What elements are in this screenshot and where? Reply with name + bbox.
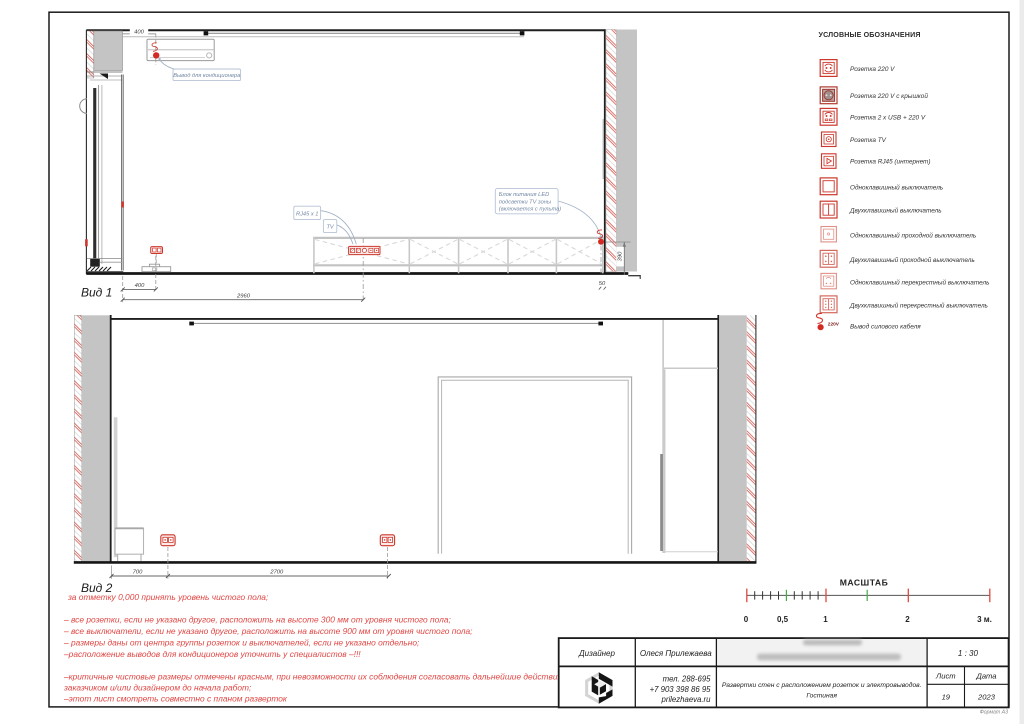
svg-text:Развертки стен с расположением: Развертки стен с расположением розеток и…: [722, 681, 922, 689]
svg-text:Одноклавишный проходной выключ: Одноклавишный проходной выключатель: [850, 231, 976, 239]
svg-text:1 : 30: 1 : 30: [958, 649, 979, 658]
svg-text:2960: 2960: [236, 294, 251, 300]
svg-text:тел. 288-695: тел. 288-695: [663, 674, 712, 683]
svg-text:Блок питания LED: Блок питания LED: [499, 192, 549, 198]
svg-text:TV: TV: [326, 225, 334, 231]
svg-text:Одноклавишный перекрестный вык: Одноклавишный перекрестный выключатель: [850, 278, 989, 286]
svg-text:– размеры даны от центра групп: – размеры даны от центра группы розеток …: [63, 638, 420, 648]
svg-text:Двухклавишный перекрестный вык: Двухклавишный перекрестный выключатель: [849, 301, 988, 309]
svg-text:(включается с пульта): (включается с пульта): [499, 206, 561, 212]
svg-text:0: 0: [744, 615, 749, 624]
svg-text:220V: 220V: [828, 322, 840, 328]
svg-text:УСЛОВНЫЕ ОБОЗНАЧЕНИЯ: УСЛОВНЫЕ ОБОЗНАЧЕНИЯ: [819, 31, 921, 39]
svg-text:Олеся Прилежаева: Олеся Прилежаева: [640, 649, 712, 658]
svg-text:Двухклавишный выключатель: Двухклавишный выключатель: [849, 207, 942, 215]
svg-text:prilezhaeva.ru: prilezhaeva.ru: [661, 695, 712, 704]
svg-text:Дата: Дата: [975, 672, 996, 681]
svg-text:50: 50: [599, 281, 606, 287]
svg-text:1: 1: [823, 615, 828, 624]
svg-text:Дизайнер: Дизайнер: [578, 649, 615, 658]
svg-text:МАСШТАБ: МАСШТАБ: [840, 578, 889, 588]
svg-text:–критичные чистовые размеры от: –критичные чистовые размеры отмечены кра…: [63, 672, 569, 682]
svg-text:390: 390: [618, 251, 624, 261]
svg-text:– все розетки, если не указано: – все розетки, если не указано другое, р…: [63, 615, 451, 625]
svg-text:0,5: 0,5: [777, 615, 789, 624]
svg-text:Розетка 220 V с крышкой: Розетка 220 V с крышкой: [850, 92, 928, 100]
svg-text:Вывод для кондиционера: Вывод для кондиционера: [173, 73, 240, 79]
svg-text:2: 2: [905, 615, 910, 624]
svg-text:Лист: Лист: [935, 672, 956, 681]
svg-text:400: 400: [134, 30, 144, 36]
svg-text:700: 700: [133, 570, 143, 576]
svg-text:заказчиком и/или дизайнером до: заказчиком и/или дизайнером до начала ра…: [63, 682, 252, 692]
svg-text:Вывод силового кабеля: Вывод силового кабеля: [850, 323, 921, 331]
svg-text:–расположение выводов для конд: –расположение выводов для кондиционеров …: [63, 649, 361, 659]
svg-text:– все выключатели, если не ука: – все выключатели, если не указано друго…: [63, 626, 473, 636]
svg-text:3 м.: 3 м.: [977, 615, 992, 624]
svg-text:Двухклавишный проходной выключ: Двухклавишный проходной выключатель: [849, 256, 975, 264]
svg-text:400: 400: [135, 283, 145, 289]
svg-text:Вид 1: Вид 1: [81, 286, 112, 300]
svg-text:Розетка 220 V: Розетка 220 V: [850, 66, 895, 73]
svg-text:подсветки TV зоны: подсветки TV зоны: [499, 199, 552, 205]
svg-text:2700: 2700: [269, 570, 284, 576]
svg-text:Формат А3: Формат А3: [980, 709, 1008, 715]
svg-text:за отметку 0,000 принять урове: за отметку 0,000 принять уровень чистого…: [67, 592, 269, 602]
svg-text:19: 19: [942, 693, 951, 702]
svg-text:RJ45 x 1: RJ45 x 1: [296, 211, 318, 217]
svg-text:Одноклавишный выключатель: Одноклавишный выключатель: [850, 183, 943, 191]
svg-text:Гостиная: Гостиная: [806, 692, 837, 699]
svg-text:Розетка 2 х USB + 220 V: Розетка 2 х USB + 220 V: [850, 115, 926, 122]
svg-text:+7 903 398 86 95: +7 903 398 86 95: [650, 685, 712, 694]
svg-text:2023: 2023: [977, 693, 996, 702]
svg-text:–этот лист смотреть совместно: –этот лист смотреть совместно с планом р…: [63, 694, 288, 704]
svg-text:Розетка RJ45 (интернет): Розетка RJ45 (интернет): [850, 159, 931, 166]
svg-text:Розетка TV: Розетка TV: [850, 137, 887, 144]
